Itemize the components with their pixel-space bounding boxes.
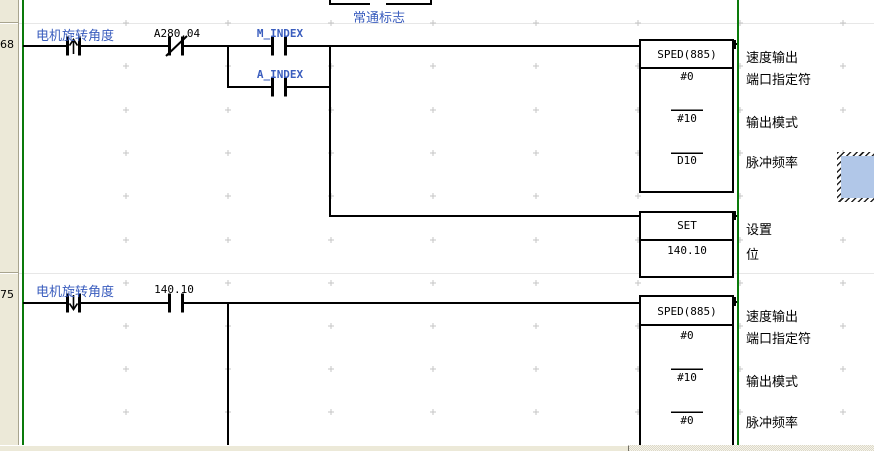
operand-comment: 端口指定符 xyxy=(746,328,811,347)
rung-margin-separator xyxy=(0,22,18,24)
contact-label-always-on-flag[interactable]: 常通标志 xyxy=(353,7,405,26)
contact-label-motor-angle[interactable]: 电机旋转角度 xyxy=(36,25,114,44)
left-bus-bar xyxy=(22,0,24,445)
operand-comment: 设置 xyxy=(746,219,772,238)
rung-margin-separator xyxy=(0,272,18,274)
operand-comment: 脉冲频率 xyxy=(746,152,798,171)
operand-comment: 速度输出 xyxy=(746,306,798,325)
operand-value[interactable]: #10 xyxy=(677,371,697,384)
instruction-name-sped-2[interactable]: SPED(885) xyxy=(657,305,717,318)
contact-label-a-index[interactable]: A_INDEX xyxy=(257,68,303,81)
wires xyxy=(23,0,737,445)
operand-comment: 速度输出 xyxy=(746,47,798,66)
contact-label-a280-04[interactable]: A280.04 xyxy=(154,27,200,40)
operand-comment: 输出模式 xyxy=(746,371,798,390)
operand-value[interactable]: 140.10 xyxy=(667,244,707,257)
instruction-name-sped-1[interactable]: SPED(885) xyxy=(657,48,717,61)
contact-label-motor-angle[interactable]: 电机旋转角度 xyxy=(36,281,114,300)
right-bus-bar xyxy=(737,0,739,445)
operand-value[interactable]: #0 xyxy=(680,414,693,427)
selection-cursor[interactable] xyxy=(837,152,874,202)
operand-value[interactable]: #10 xyxy=(677,112,697,125)
operand-value[interactable]: #0 xyxy=(680,70,693,83)
horizontal-scrollbar-thumb[interactable] xyxy=(0,445,629,451)
operand-comment: 输出模式 xyxy=(746,112,798,131)
contact-140-10[interactable] xyxy=(168,294,184,313)
rung-margin: 68 75 xyxy=(0,0,19,445)
operand-value[interactable]: D10 xyxy=(677,154,697,167)
operand-value[interactable]: #0 xyxy=(680,329,693,342)
contact-label-m-index[interactable]: M_INDEX xyxy=(257,27,303,40)
instruction-name-set[interactable]: SET xyxy=(677,219,697,232)
rung-number-75[interactable]: 75 xyxy=(0,288,14,301)
ladder-canvas[interactable] xyxy=(0,0,874,445)
horizontal-scrollbar[interactable] xyxy=(0,445,874,451)
operand-comment: 端口指定符 xyxy=(746,69,811,88)
operand-comment: 位 xyxy=(746,244,759,263)
contact-label-140-10[interactable]: 140.10 xyxy=(154,283,194,296)
ladder-editor-window: 68 75 常通标志 电机旋转角度 A280.04 M_INDEX A_INDE… xyxy=(0,0,874,451)
selection-cursor-fill xyxy=(841,156,874,198)
rung-number-68[interactable]: 68 xyxy=(0,38,14,51)
operand-comment: 脉冲频率 xyxy=(746,412,798,431)
